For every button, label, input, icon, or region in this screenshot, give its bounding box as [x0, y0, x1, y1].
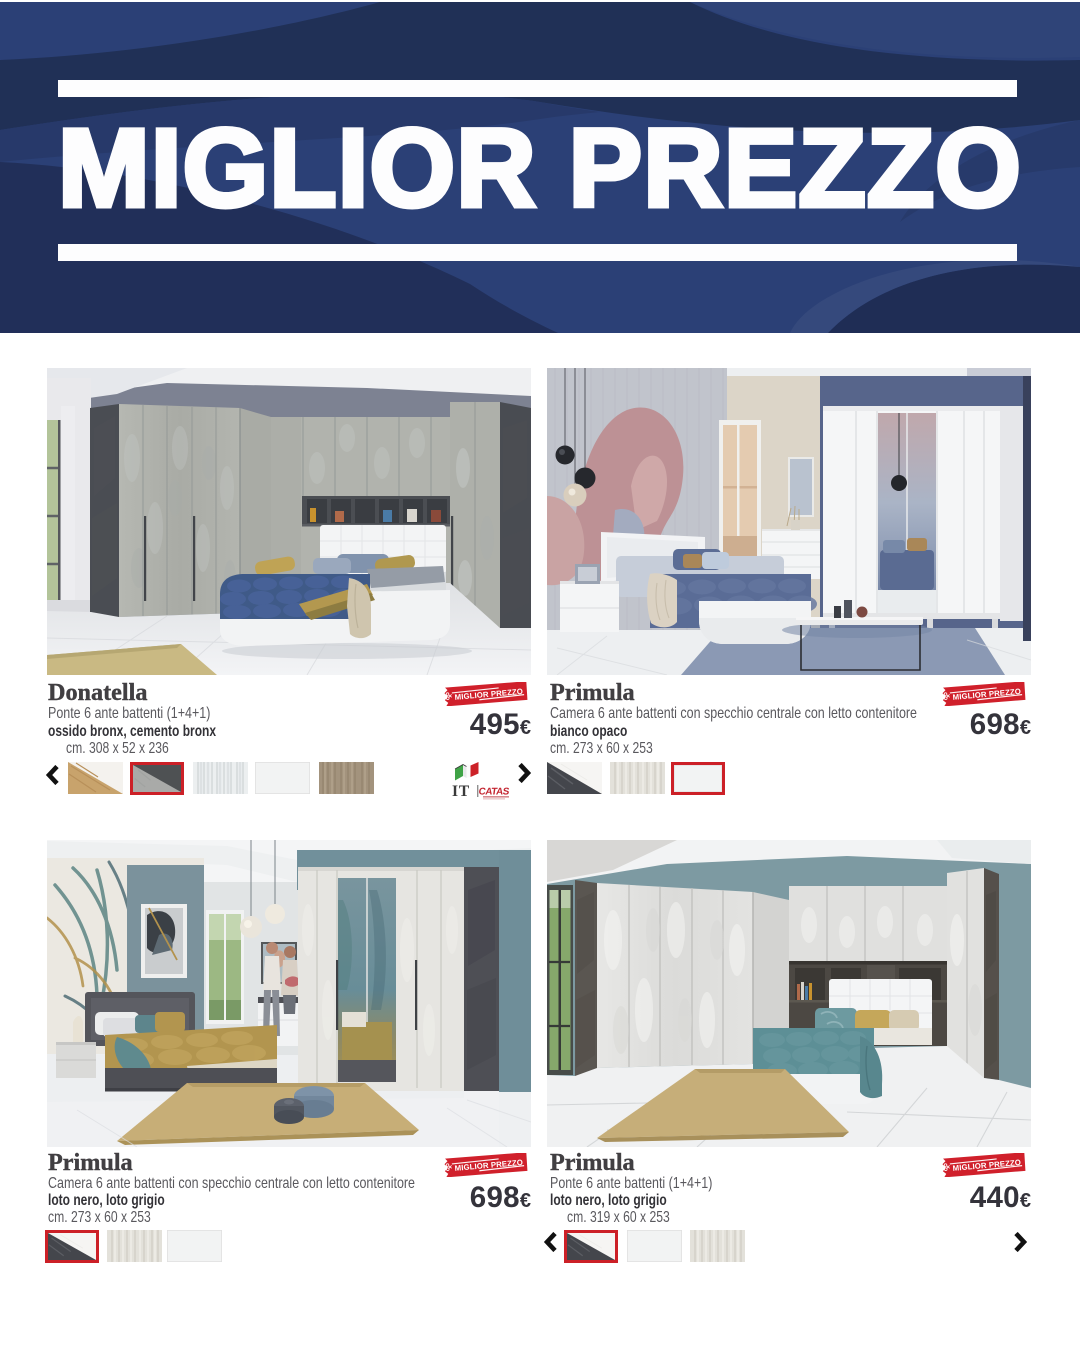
svg-text:CATAS: CATAS [478, 787, 511, 798]
svg-text:IT: IT [452, 783, 470, 800]
